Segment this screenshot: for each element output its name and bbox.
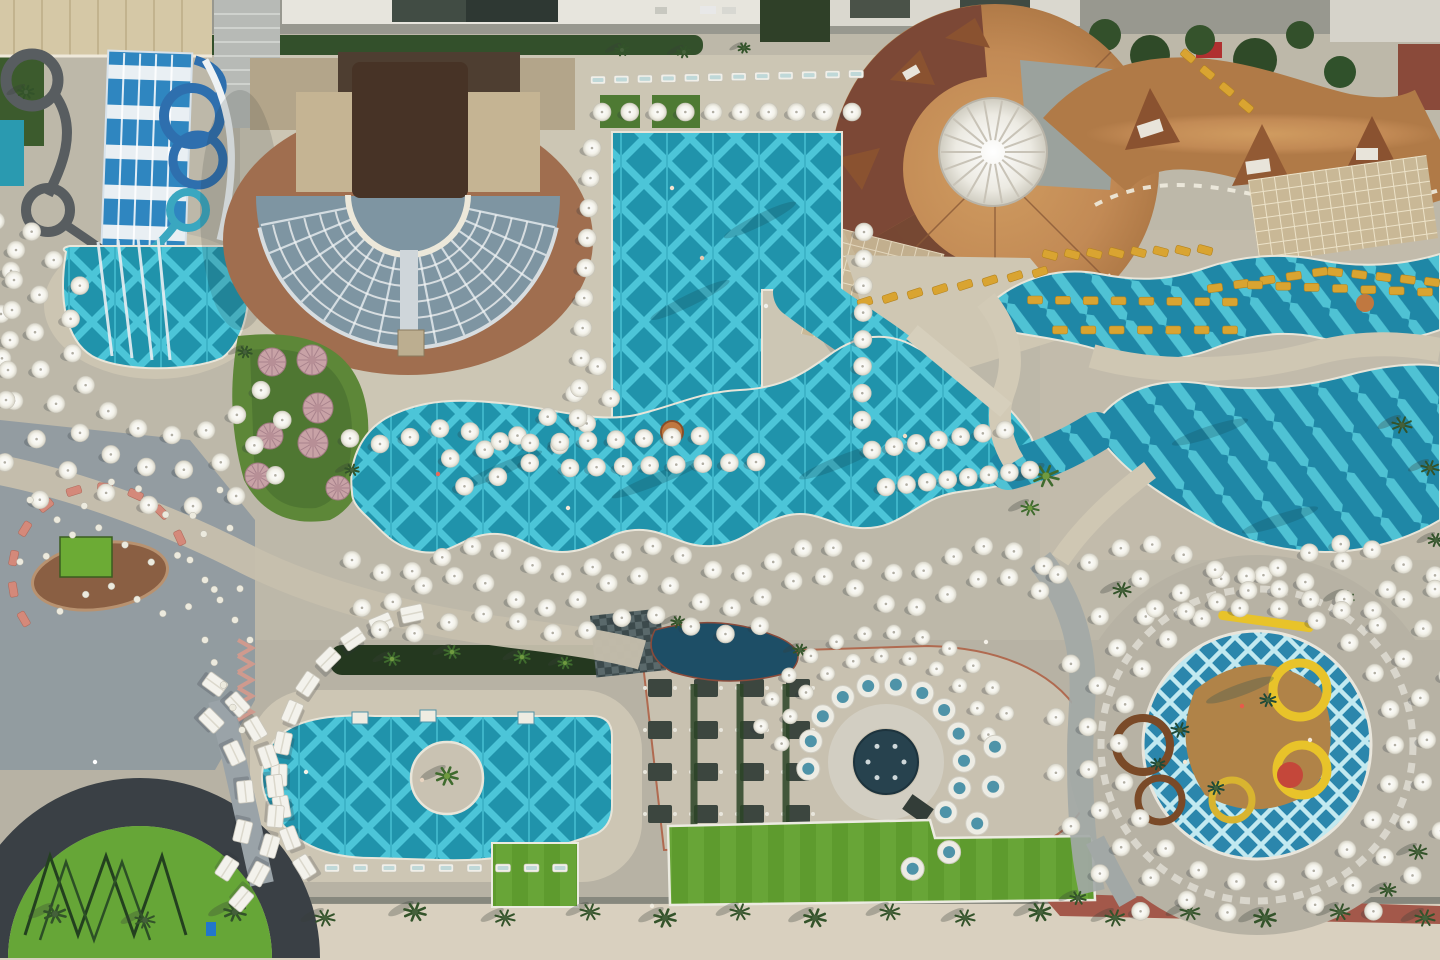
slide-tower-canopy bbox=[0, 0, 212, 56]
wide-racer-slide bbox=[101, 51, 192, 266]
bar-center bbox=[854, 730, 918, 794]
red-slide bbox=[1277, 762, 1303, 788]
aerial-scene-canvas bbox=[0, 0, 1440, 960]
small-side-pool bbox=[0, 120, 24, 186]
resort-aerial-photo bbox=[0, 0, 1440, 960]
stage-turf-square bbox=[60, 537, 112, 577]
stage-floor bbox=[352, 62, 468, 198]
